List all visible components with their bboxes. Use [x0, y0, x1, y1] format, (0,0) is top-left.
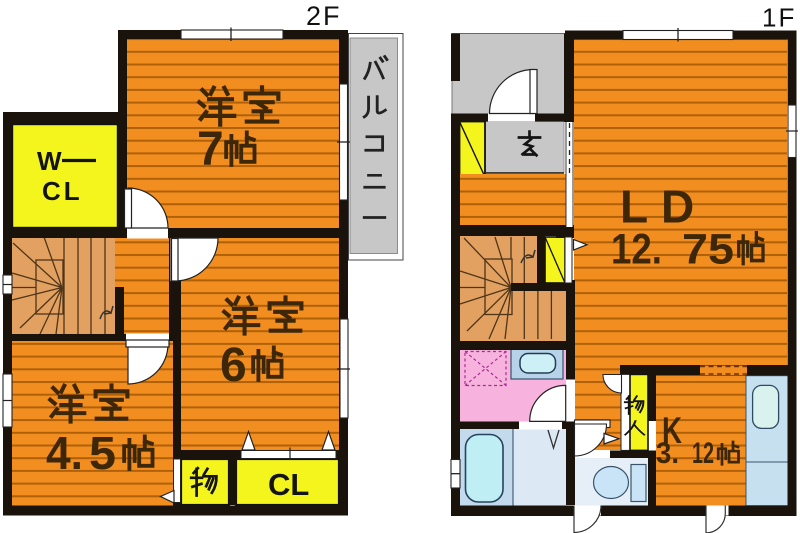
svg-text:5: 5: [89, 427, 116, 479]
svg-text:6: 6: [220, 339, 247, 392]
svg-text:75: 75: [682, 226, 734, 274]
svg-text:12.: 12.: [611, 226, 662, 274]
svg-text:W: W: [37, 146, 62, 176]
svg-text:2F: 2F: [306, 1, 342, 31]
svg-text:CL: CL: [42, 176, 83, 206]
svg-text:4.: 4.: [46, 427, 83, 479]
svg-text:12: 12: [692, 437, 714, 470]
svg-text:3.: 3.: [656, 437, 679, 470]
svg-text:CL: CL: [268, 467, 309, 502]
svg-text:7: 7: [197, 123, 224, 176]
svg-text:1F: 1F: [762, 3, 796, 33]
